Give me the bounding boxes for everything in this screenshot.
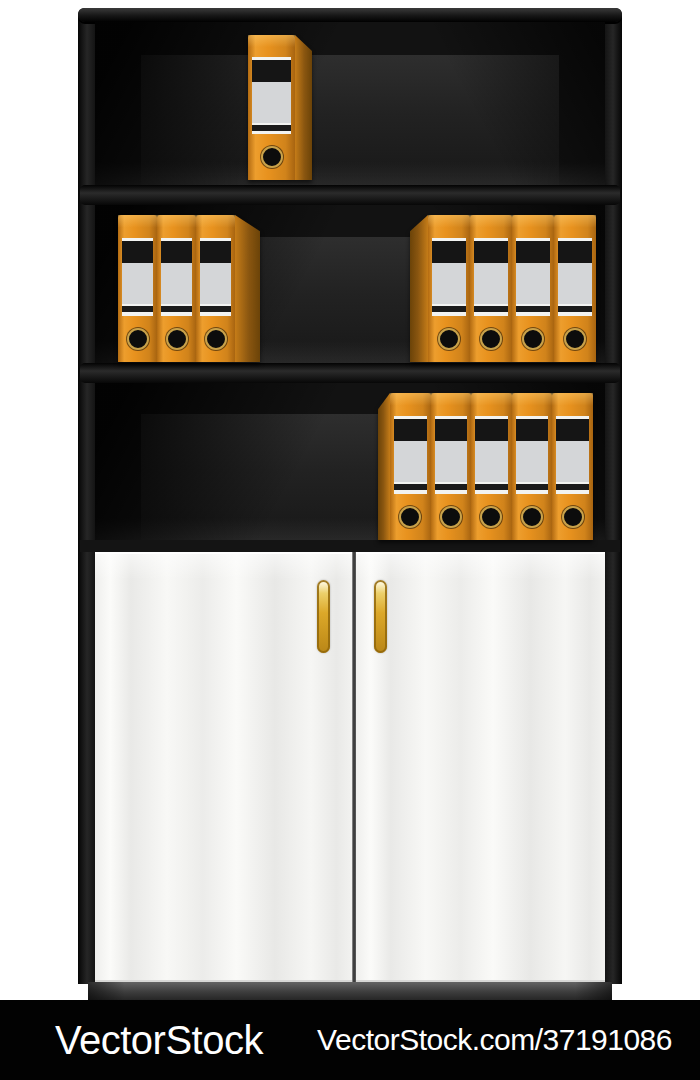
binder-spines (390, 393, 593, 540)
binder-group-side-face (295, 35, 312, 180)
binder-label-black-band (252, 60, 291, 82)
binder-group-shelf2-right (410, 215, 596, 362)
binder-label-black-band (474, 241, 508, 263)
binder-label (435, 441, 468, 482)
binder-ring-hole (522, 328, 544, 350)
vectorstock-logo-text: VectorStock (55, 1018, 263, 1063)
binder-label (394, 441, 427, 482)
binder-label (200, 263, 231, 304)
binder-label (432, 263, 466, 304)
binder-label-black-band (435, 419, 468, 441)
binder-spines (118, 215, 235, 362)
binder-group-shelf1 (248, 35, 312, 180)
binder (390, 393, 431, 540)
binder (248, 35, 295, 180)
binder-ring-hole (480, 328, 502, 350)
binder-group-side-face (378, 393, 390, 540)
binder-label (252, 82, 291, 123)
binder-label (161, 263, 192, 304)
binder-ring-hole (564, 328, 586, 350)
binder (431, 393, 472, 540)
right-door (356, 552, 605, 982)
binder-label-black-band (516, 419, 549, 441)
binder-label-black-band (556, 419, 589, 441)
watermark-url: VectorStock.com/37191086 (317, 1023, 672, 1057)
binder-ring-hole (521, 506, 543, 528)
binder (471, 393, 512, 540)
binder (554, 215, 596, 362)
binder-ring-hole (127, 328, 149, 350)
binder-group-shelf3 (378, 393, 593, 540)
right-door-handle (374, 580, 387, 653)
watermark-bar: VectorStock VectorStock.com/37191086 (0, 1000, 700, 1080)
binder-label-black-band (475, 419, 508, 441)
binder-ring-hole (438, 328, 460, 350)
binder (157, 215, 196, 362)
binder-label (558, 263, 592, 304)
shelf-1-interior (95, 22, 605, 185)
cabinet (78, 8, 622, 984)
binder-label-black-band (394, 419, 427, 441)
cabinet-base (88, 982, 612, 1000)
office-cabinet-illustration: VectorStock VectorStock.com/37191086 (0, 0, 700, 1080)
binder-label (122, 263, 153, 304)
left-door (95, 552, 352, 982)
binder-label-black-band (161, 241, 192, 263)
left-door-handle (317, 580, 330, 653)
binder-label-black-band (516, 241, 550, 263)
binder (118, 215, 157, 362)
door-top-rail (80, 540, 620, 552)
binder-ring-hole (480, 506, 502, 528)
binder (428, 215, 470, 362)
cabinet-top-cap (78, 8, 622, 22)
binder-group-side-face (410, 215, 428, 362)
binder-label (475, 441, 508, 482)
binder (512, 393, 553, 540)
binder-ring-hole (261, 146, 283, 168)
binder-label-black-band (200, 241, 231, 263)
binder-ring-hole (166, 328, 188, 350)
binder (512, 215, 554, 362)
shelf-divider-1 (80, 185, 620, 205)
binder-spines (248, 35, 295, 180)
binder-spines (428, 215, 596, 362)
binder-label (516, 263, 550, 304)
binder-label (556, 441, 589, 482)
binder-ring-hole (440, 506, 462, 528)
binder-ring-hole (399, 506, 421, 528)
shelf-divider-2 (80, 363, 620, 383)
binder-group-shelf2-left (118, 215, 260, 362)
binder (470, 215, 512, 362)
binder-group-side-face (235, 215, 260, 362)
binder-ring-hole (562, 506, 584, 528)
door-section (95, 552, 605, 982)
binder-label (474, 263, 508, 304)
binder-label-black-band (558, 241, 592, 263)
binder (552, 393, 593, 540)
binder-label-black-band (432, 241, 466, 263)
binder-label-black-band (122, 241, 153, 263)
binder (196, 215, 235, 362)
binder-label (516, 441, 549, 482)
binder-ring-hole (205, 328, 227, 350)
